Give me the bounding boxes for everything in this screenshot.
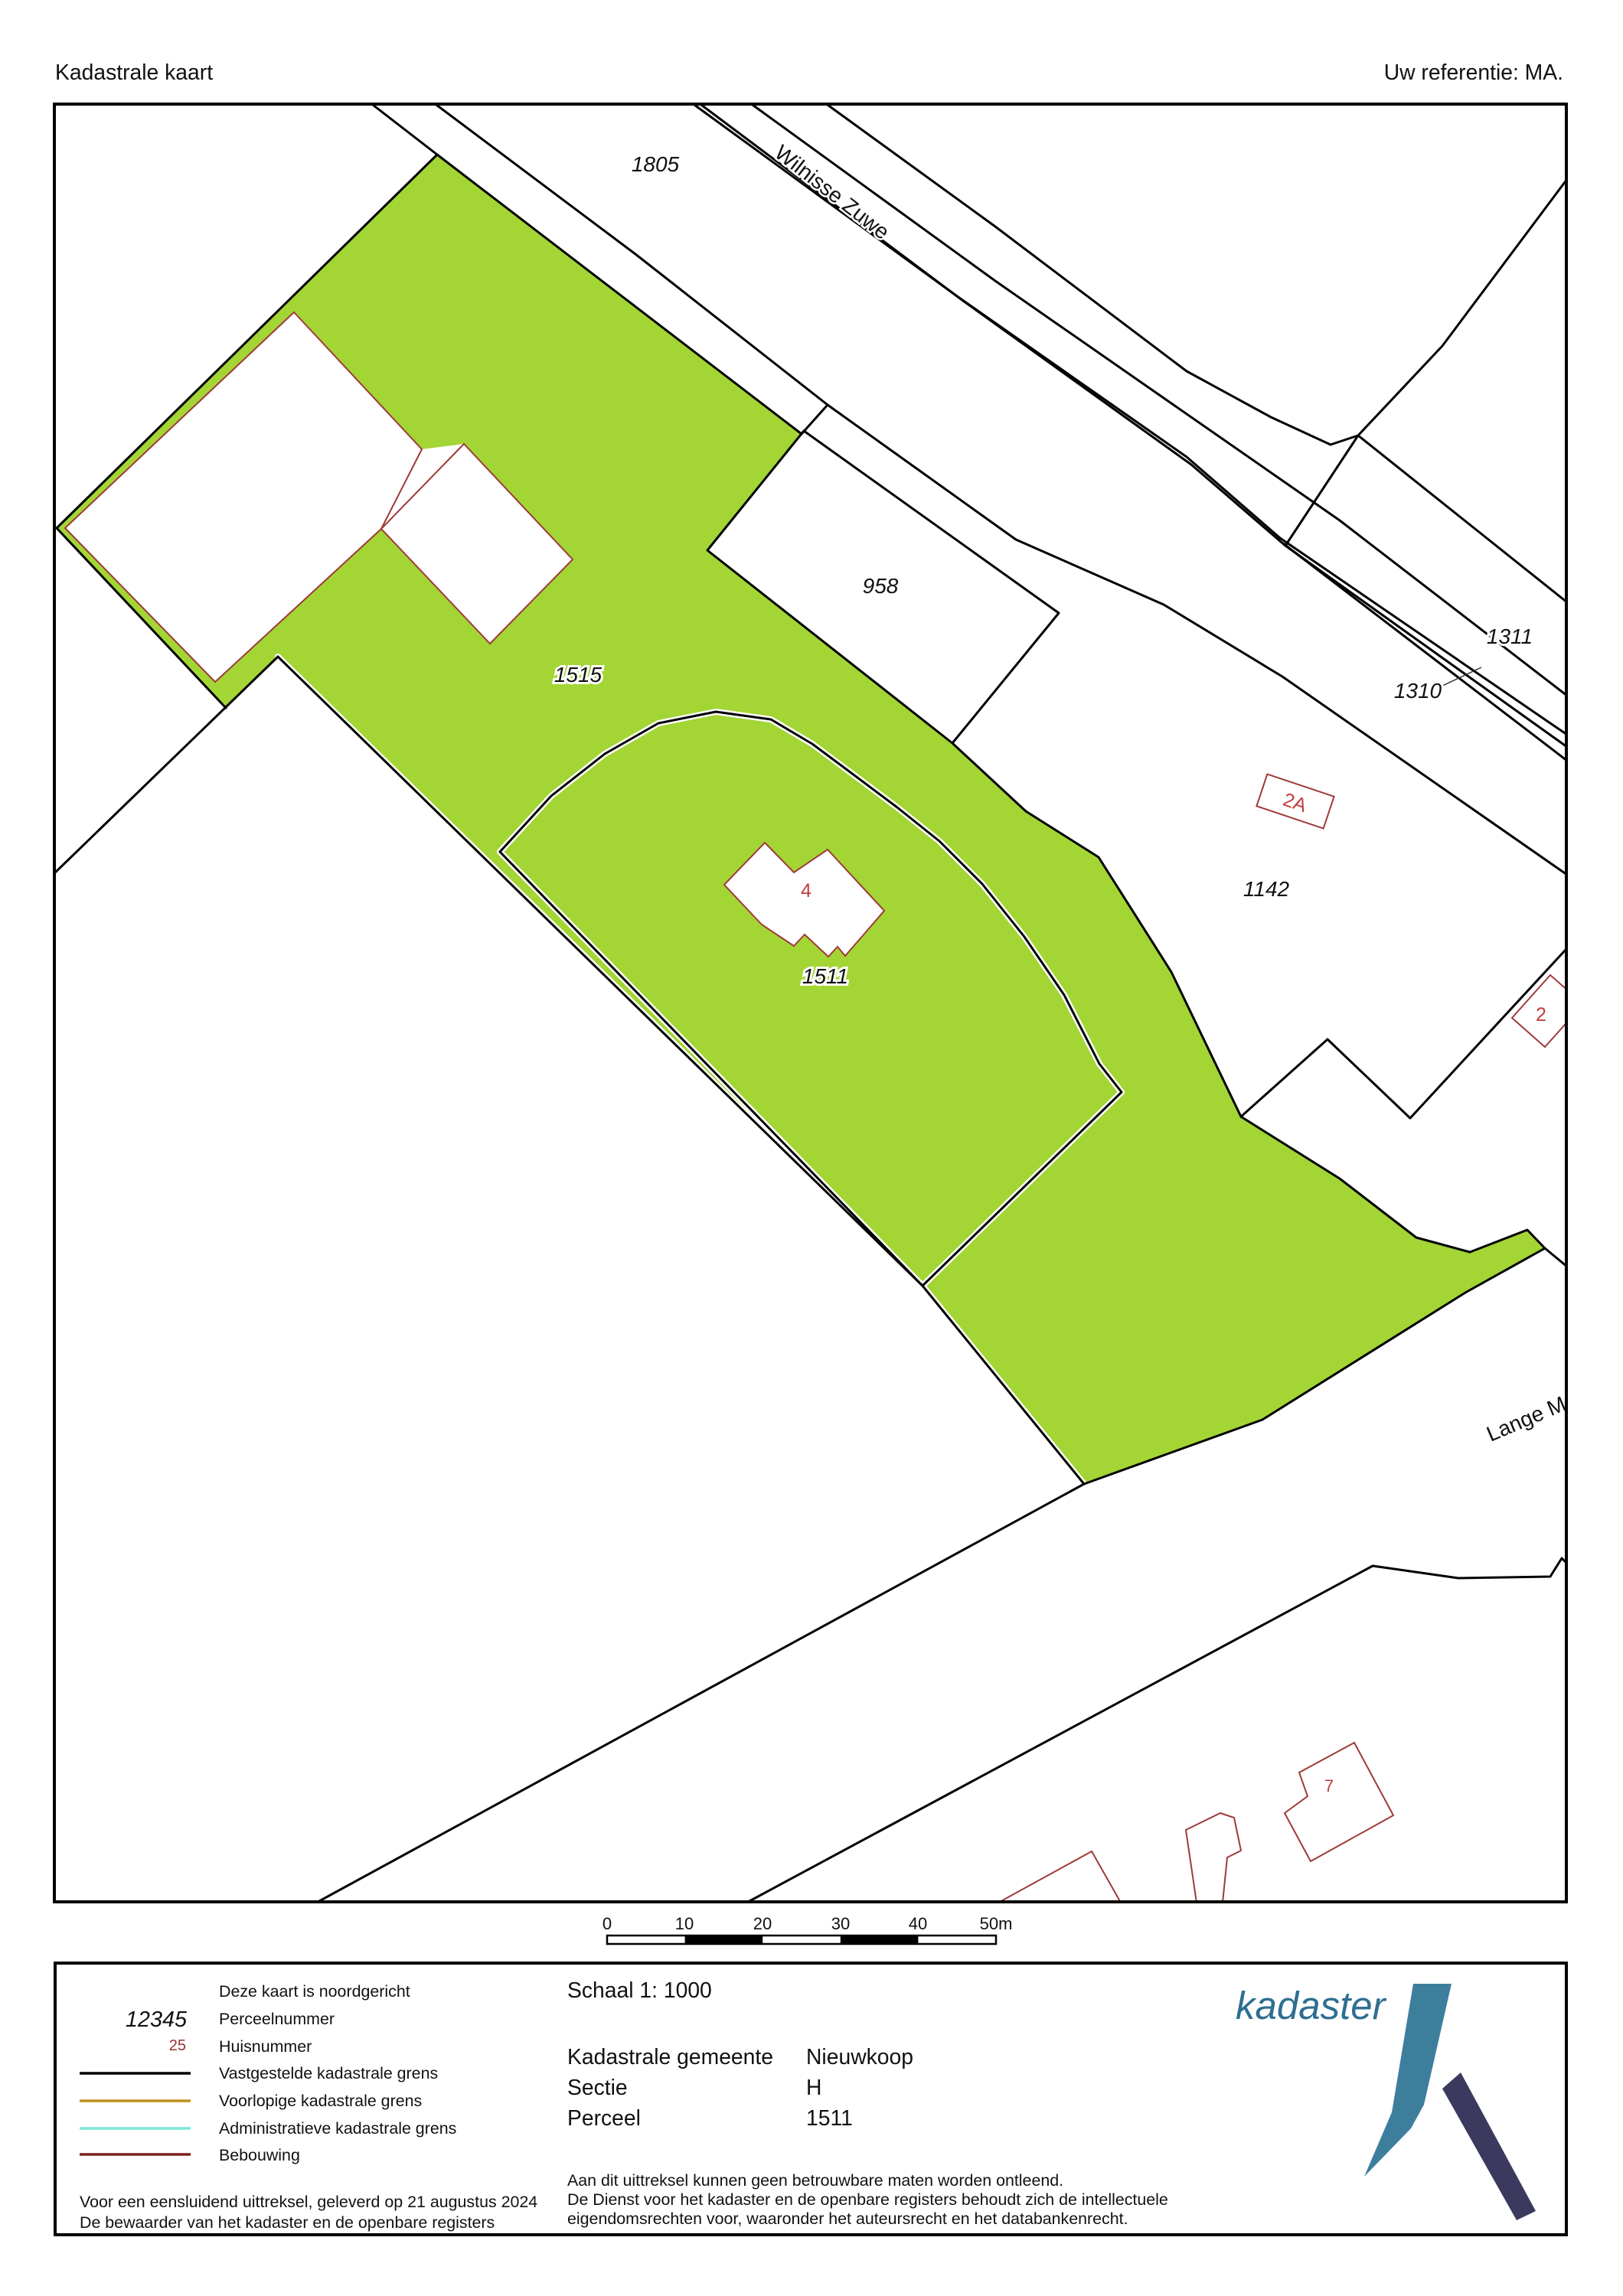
svg-text:Perceelnummer: Perceelnummer — [219, 2010, 335, 2028]
svg-text:Deze kaart is noordgericht: Deze kaart is noordgericht — [219, 1982, 410, 2001]
svg-text:Lange M: Lange M — [1483, 1391, 1569, 1446]
svg-text:12345: 12345 — [126, 2007, 188, 2032]
svg-text:1511: 1511 — [802, 964, 848, 988]
svg-text:De bewaarder van het kadaster: De bewaarder van het kadaster en de open… — [80, 2213, 495, 2232]
svg-text:De Dienst voor het kadaster en: De Dienst voor het kadaster en de openba… — [567, 2190, 1168, 2209]
svg-text:1511: 1511 — [806, 2105, 853, 2130]
svg-text:0: 0 — [603, 1914, 612, 1933]
svg-text:30: 30 — [831, 1914, 850, 1933]
svg-text:40: 40 — [909, 1914, 927, 1933]
svg-text:Uw referentie: MA.: Uw referentie: MA. — [1384, 60, 1563, 84]
svg-text:Schaal 1: 1000: Schaal 1: 1000 — [567, 1978, 712, 2002]
svg-text:958: 958 — [863, 574, 899, 598]
svg-text:Kadastrale gemeente: Kadastrale gemeente — [567, 2044, 773, 2069]
svg-text:eigendomsrechten voor, waarond: eigendomsrechten voor, waaronder het aut… — [567, 2210, 1128, 2228]
svg-text:1515: 1515 — [554, 663, 603, 687]
svg-text:Voor een eensluidend uittrekse: Voor een eensluidend uittreksel, gelever… — [80, 2193, 537, 2211]
svg-text:20: 20 — [753, 1914, 772, 1933]
svg-text:Bebouwing: Bebouwing — [219, 2146, 300, 2164]
svg-text:10: 10 — [675, 1914, 694, 1933]
svg-text:2: 2 — [1536, 1004, 1546, 1026]
svg-text:Voorlopige kadastrale grens: Voorlopige kadastrale grens — [219, 2092, 422, 2110]
svg-text:Kadastrale kaart: Kadastrale kaart — [55, 60, 213, 84]
svg-text:Sectie: Sectie — [567, 2075, 628, 2099]
svg-text:kadaster: kadaster — [1236, 1984, 1387, 2027]
svg-text:1142: 1142 — [1243, 877, 1290, 901]
svg-text:Nieuwkoop: Nieuwkoop — [806, 2044, 913, 2069]
svg-text:Huisnummer: Huisnummer — [219, 2037, 312, 2056]
svg-text:Aan dit uittreksel kunnen geen: Aan dit uittreksel kunnen geen betrouwba… — [567, 2171, 1063, 2190]
svg-text:25: 25 — [169, 2037, 186, 2054]
svg-text:1805: 1805 — [632, 152, 680, 176]
svg-text:Perceel: Perceel — [567, 2105, 641, 2130]
svg-text:7: 7 — [1324, 1776, 1334, 1795]
svg-text:Administratieve kadastrale gre: Administratieve kadastrale grens — [219, 2119, 456, 2138]
svg-text:1311: 1311 — [1487, 625, 1533, 648]
svg-text:1310: 1310 — [1394, 679, 1442, 703]
svg-text:Wilnisse Zuwe: Wilnisse Zuwe — [770, 140, 893, 244]
svg-text:H: H — [806, 2075, 821, 2099]
svg-text:Vastgestelde kadastrale grens: Vastgestelde kadastrale grens — [219, 2064, 438, 2082]
svg-text:50m: 50m — [980, 1914, 1013, 1933]
svg-text:4: 4 — [801, 880, 811, 902]
